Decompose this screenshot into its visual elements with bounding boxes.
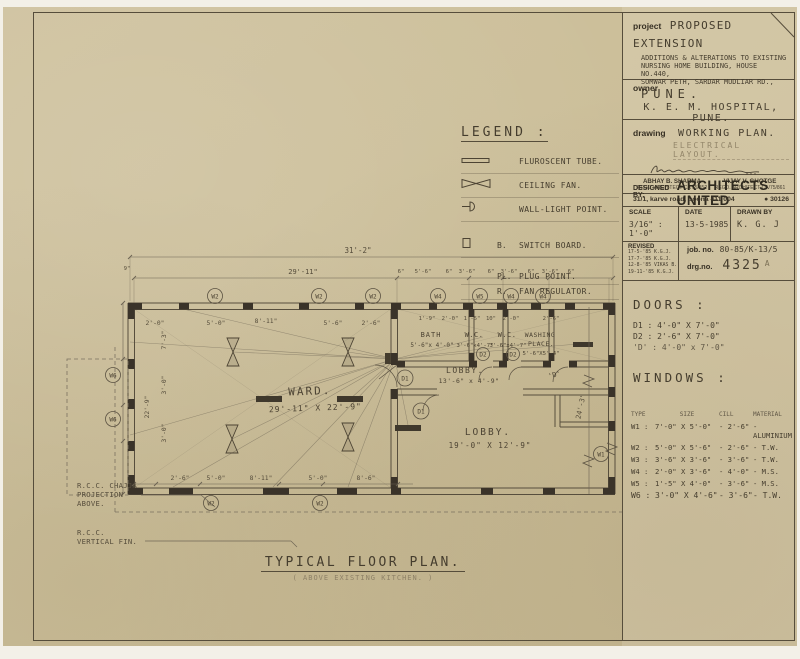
window-row-w4: W4 :2'-0" X 3'-6"- 4'-0"- M.S. — [631, 467, 791, 476]
room-lobby-corridor: LOBBY. 13'-6" x 4'-9" — [439, 366, 500, 385]
switch-board-symbol — [385, 353, 391, 364]
project-line2: NURSING HOME BUILDING, HOUSE NO.440, — [641, 62, 789, 78]
note-leaders — [141, 495, 297, 547]
legend-item-ceiling-fan: CEILING FAN. — [461, 174, 619, 198]
door-tag-d1: D1 — [401, 376, 409, 383]
tb-designedby-section: DESIGNED BY: ARCHITECTS UNITED — [623, 175, 795, 194]
room-washing-place: WASHING PLACE. 5'-6"X5'-4" — [522, 331, 559, 357]
svg-text:29'-11" X 22'-9": 29'-11" X 22'-9" — [269, 402, 362, 414]
svg-text:5'-0": 5'-0" — [207, 475, 226, 482]
windows-header-size: SIZE — [655, 411, 719, 418]
legend-item-fan-regulator: R. FAN REGULATOR. — [461, 285, 619, 300]
room-lobby-main: LOBBY. 19'-0" X 12'-9" — [449, 427, 532, 450]
svg-text:PLACE.: PLACE. — [528, 340, 554, 348]
svg-text:LOBBY.: LOBBY. — [465, 427, 511, 438]
dims-bottom-row: 2'-6" 5'-0" 8'-11" 5'-0" 8'-6" — [171, 475, 376, 482]
dim-left-offset: 9" — [124, 266, 131, 272]
svg-text:3'-6"x4'-7": 3'-6"x4'-7" — [456, 343, 493, 349]
svg-text:8'-11": 8'-11" — [250, 475, 273, 482]
drawnby-value: K. G. J — [737, 220, 795, 230]
tb-meta-section: SCALE 3/16" : 1'-0" DATE 13-5-1985 DRAWN… — [623, 207, 795, 242]
window-row-w6: W6 :3'-0" X 4'-6"- 3'-6"- T.W. — [631, 491, 791, 500]
svg-text:5'-6": 5'-6" — [324, 320, 343, 327]
owner-label: owner — [633, 83, 789, 93]
windows-header-cill: CILL — [719, 411, 753, 418]
svg-text:2'-0": 2'-0" — [442, 316, 459, 322]
window-tag-w2: W2 — [315, 294, 323, 301]
dim-overall: 31'-2" — [344, 246, 371, 255]
svg-text:8'-6": 8'-6" — [357, 475, 376, 482]
svg-text:5'-0": 5'-0" — [207, 320, 226, 327]
window-row-w3: W3 :3'-6" X 3'-6"- 3'-6"- T.W. — [631, 455, 791, 464]
drgno-value: 4325 — [722, 258, 761, 273]
windows-header-material: MATERIAL — [753, 411, 791, 418]
window-tag-w6: W6 — [109, 373, 117, 380]
svg-text:5'-6": 5'-6" — [415, 269, 432, 275]
window-tag-w6: W6 — [109, 417, 117, 424]
dims-inner-top: 2'-0" 5'-0" 8'-11" 5'-6" 2'-6" — [146, 318, 381, 327]
project-line1: ADDITIONS & ALTERATIONS TO EXISTING — [641, 54, 789, 62]
windows-header-type: TYPE — [631, 411, 655, 418]
svg-text:W.C.: W.C. — [465, 331, 484, 339]
svg-text:6": 6" — [398, 269, 405, 275]
drawing-stamp: ELECTRICAL LAYOUT. — [673, 141, 789, 160]
svg-text:3'-6"x4'-7": 3'-6"x4'-7" — [489, 343, 526, 349]
svg-text:5'-0": 5'-0" — [309, 475, 328, 482]
room-wc1: W.C. 3'-6"x4'-7" — [456, 331, 493, 349]
legend-title: LEGEND : — [461, 125, 548, 142]
drgno-suffix: A — [765, 259, 770, 268]
note-chajja: R.C.C. CHAJJA PROJECTION ABOVE. — [77, 481, 137, 508]
revision-entry: 12-8-'85 VIKAS B. — [628, 263, 678, 270]
note-vertical-fin: R.C.C. VERTICAL FIN. — [77, 528, 137, 546]
svg-text:10": 10" — [486, 316, 496, 322]
tb-windows-section: WINDOWS : TYPE SIZE CILL MATERIAL W1 :7'… — [623, 370, 795, 472]
switch-board-icon — [461, 236, 497, 254]
svg-text:2'-6": 2'-6" — [171, 475, 190, 482]
svg-text:5'-6"X5'-4": 5'-6"X5'-4" — [522, 351, 559, 357]
plan-subtitle-text: ( ABOVE EXISTING KITCHEN. ) — [248, 574, 478, 582]
door-spec: 'D' : 4'-0" x 7'-0" — [633, 342, 789, 353]
scale-label: SCALE — [629, 209, 678, 216]
svg-text:BATH: BATH — [421, 331, 442, 339]
dims-bath-row: 1'-9" 2'-0" 1'-5" 10" 2'-0" 2'-6" — [419, 316, 560, 322]
svg-text:7'-3": 7'-3" — [161, 331, 168, 350]
wall-light-icon — [461, 200, 497, 218]
door-spec: D1 : 4'-0" X 7'-0" — [633, 320, 789, 331]
svg-text:LOBBY.: LOBBY. — [446, 366, 484, 375]
svg-text:WARD.: WARD. — [288, 384, 332, 398]
svg-text:1'-9": 1'-9" — [419, 316, 436, 322]
drawing-label: drawing — [633, 128, 666, 138]
doors-title: DOORS : — [633, 297, 789, 312]
firm-phone: 30126 — [770, 196, 789, 203]
dim-ward-width: 29'-11" — [288, 268, 318, 276]
project-label: project — [633, 21, 661, 31]
window-tag-w2: W2 — [207, 501, 215, 508]
tb-drawing-section: drawing WORKING PLAN. ELECTRICAL LAYOUT.… — [623, 120, 795, 175]
ceiling-fan-icon — [461, 176, 497, 194]
jobno-label: job. no. — [687, 245, 714, 254]
svg-text:2'-0": 2'-0" — [503, 316, 520, 322]
window-tag-w1: W1 — [597, 452, 605, 459]
legend-item-fluorescent-tube: FLUROSCENT TUBE. — [461, 150, 619, 174]
door-tag-d1: D1 — [417, 409, 425, 416]
windows-title: WINDOWS : — [623, 370, 795, 385]
svg-text:13'-6" x 4'-9": 13'-6" x 4'-9" — [439, 377, 500, 385]
svg-text:8'-11": 8'-11" — [255, 318, 278, 325]
svg-text:WASHING: WASHING — [525, 331, 555, 339]
room-bath: BATH 5'-6"x 4'-0" — [410, 331, 453, 349]
drawnby-label: DRAWN BY — [737, 209, 795, 216]
dims-left-vertical: 7'-3" 3'-0" 22'-9" 3'-0" — [144, 331, 168, 443]
drawing-title: WORKING PLAN. — [678, 128, 776, 139]
plan-title-text: TYPICAL FLOOR PLAN. — [261, 555, 465, 572]
fluorescent-tube-icon — [461, 152, 497, 170]
legend-item-wall-light: WALL-LIGHT POINT. — [461, 198, 619, 222]
svg-text:19'-0" X 12'-9": 19'-0" X 12'-9" — [449, 441, 532, 450]
door-tag-d-quoted: 'D' — [547, 370, 561, 381]
window-tag-w4: W4 — [434, 294, 442, 301]
legend: LEGEND : FLUROSCENT TUBE. CEILING FAN. W… — [461, 123, 619, 300]
tb-project-section: project PROPOSED EXTENSION ADDITIONS & A… — [623, 12, 795, 80]
date-value: 13-5-1985 — [685, 220, 730, 229]
plan-title: TYPICAL FLOOR PLAN. ( ABOVE EXISTING KIT… — [248, 553, 478, 582]
title-block: project PROPOSED EXTENSION ADDITIONS & A… — [622, 12, 795, 641]
date-label: DATE — [685, 209, 730, 216]
svg-text:2'-0": 2'-0" — [146, 320, 165, 327]
window-tag-w2: W2 — [316, 501, 324, 508]
revision-entry: 19-11-'85 K.G.J. — [628, 270, 678, 277]
svg-text:1'-5": 1'-5" — [464, 316, 481, 322]
firm-address: 31/1, karve road, poona 411 004 — [633, 196, 735, 206]
dim-right-vertical: 24'-3" — [575, 393, 588, 419]
jobno-value: 80-85/K-13/5 — [720, 245, 778, 254]
window-tag-w2: W2 — [211, 294, 219, 301]
svg-text:6": 6" — [446, 269, 453, 275]
svg-text:5'-6"x 4'-0": 5'-6"x 4'-0" — [410, 342, 453, 349]
blueprint-paper: 31'-2" 29'-11" 9" 6" 5'-6" 6" 3'-6" 6" 3… — [3, 7, 797, 646]
svg-text:3'-0": 3'-0" — [161, 376, 168, 395]
windows-header-row: TYPE SIZE CILL MATERIAL — [631, 411, 791, 418]
svg-text:2'-6": 2'-6" — [543, 316, 560, 322]
door-tag-d2: D2 — [509, 352, 517, 359]
scale-value: 3/16" : 1'-0" — [629, 220, 678, 238]
svg-text:3'-0": 3'-0" — [161, 424, 168, 443]
legend-item-plug-point: PL. PLUG POINT. — [461, 270, 619, 285]
door-spec: D2 : 2'-6" X 7'-0" — [633, 331, 789, 342]
legend-item-switch-board: B. SWITCH BOARD. — [461, 234, 619, 258]
tb-doors-section: DOORS : D1 : 4'-0" X 7'-0" D2 : 2'-6" X … — [623, 297, 795, 353]
window-tag-w2: W2 — [369, 294, 377, 301]
tb-owner-section: owner K. E. M. HOSPITAL, PUNE. — [623, 80, 795, 120]
svg-text:W.C.: W.C. — [498, 331, 517, 339]
window-row-w2: W2 :5'-0" X 5'-6"- 2'-6"- T.W. — [631, 443, 791, 452]
svg-text:2'-6": 2'-6" — [362, 320, 381, 327]
svg-text:22'-9": 22'-9" — [144, 396, 151, 419]
tb-address-section: 31/1, karve road, poona 411 004 ● 30126 — [623, 194, 795, 207]
revision-entry: 17-5-'85 K.G.J. — [628, 250, 678, 257]
tb-revision-section: REVISED 17-5-'85 K.G.J. 17-7-'85 K.G.J. … — [623, 242, 795, 281]
drgno-label: drg.no. — [687, 262, 712, 271]
window-row-w5: W5 :1'-5" X 4'-0"- 3'-6"- M.S. — [631, 479, 791, 488]
door-tag-d2: D2 — [479, 352, 487, 359]
phone-icon: ● — [764, 196, 768, 203]
window-row-w1: W1 :7'-0" X 5'-0"- 2'-6"- ALUMINIUM — [631, 422, 791, 440]
